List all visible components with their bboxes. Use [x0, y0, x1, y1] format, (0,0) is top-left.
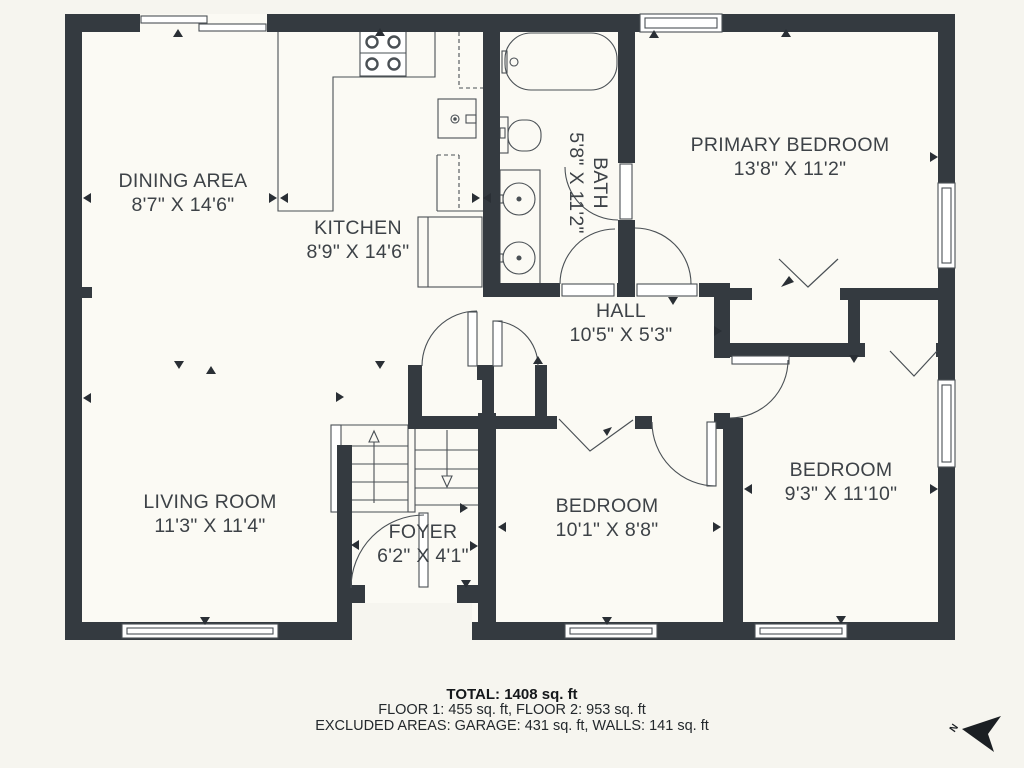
- room-name: BATH: [588, 132, 612, 234]
- sliding-door: [140, 14, 267, 32]
- wall-bath-left: [483, 32, 500, 293]
- wall-right: [938, 14, 955, 640]
- room-name: KITCHEN: [307, 216, 410, 240]
- room-dims: 5'8" X 11'2": [564, 132, 588, 234]
- window-bedroom1: [565, 624, 657, 638]
- room-dims: 9'3" X 11'10": [785, 482, 898, 506]
- room-name: BEDROOM: [785, 458, 898, 482]
- window-bedroom2-bottom: [755, 624, 847, 638]
- room-name: BEDROOM: [556, 494, 659, 518]
- wall-bottom-right: [472, 622, 955, 640]
- room-name: DINING AREA: [119, 169, 248, 193]
- room-label-bedroom-1: BEDROOM 10'1" X 8'8": [556, 494, 659, 542]
- room-label-dining-area: DINING AREA 8'7" X 14'6": [119, 169, 248, 217]
- room-name: PRIMARY BEDROOM: [691, 133, 890, 157]
- room-dims: 10'1" X 8'8": [556, 518, 659, 542]
- floor-plan-page: N DINING AREA 8'7" X 14'6" KITCHEN 8'9" …: [0, 0, 1024, 768]
- room-dims: 6'2" X 4'1": [377, 544, 469, 568]
- room-name: FOYER: [377, 520, 469, 544]
- entry-door-opening: [365, 585, 457, 603]
- room-label-hall: HALL 10'5" X 5'3": [570, 299, 673, 347]
- window-primary-top: [640, 14, 722, 32]
- floor-plan-drawing: N: [0, 0, 1024, 768]
- window-primary-right: [938, 183, 955, 268]
- room-dims: 11'3" X 11'4": [143, 514, 276, 538]
- room-dims: 13'8" X 11'2": [691, 157, 890, 181]
- area-summary: TOTAL: 1408 sq. ft FLOOR 1: 455 sq. ft, …: [0, 687, 1024, 734]
- window-bedroom2-right: [938, 380, 955, 467]
- room-name: HALL: [570, 299, 673, 323]
- room-label-foyer: FOYER 6'2" X 4'1": [377, 520, 469, 568]
- room-label-bedroom-2: BEDROOM 9'3" X 11'10": [785, 458, 898, 506]
- room-label-primary-bedroom: PRIMARY BEDROOM 13'8" X 11'2": [691, 133, 890, 181]
- room-label-bath: BATH 5'8" X 11'2": [564, 132, 612, 234]
- excluded-areas-text: EXCLUDED AREAS: GARAGE: 431 sq. ft, WALL…: [0, 719, 1024, 735]
- wall-left: [65, 14, 82, 640]
- total-area-text: TOTAL: 1408 sq. ft: [0, 687, 1024, 703]
- room-label-kitchen: KITCHEN 8'9" X 14'6": [307, 216, 410, 264]
- floor-areas-text: FLOOR 1: 455 sq. ft, FLOOR 2: 953 sq. ft: [0, 703, 1024, 719]
- room-label-living-room: LIVING ROOM 11'3" X 11'4": [143, 490, 276, 538]
- stove-icon: [360, 30, 406, 76]
- room-name: LIVING ROOM: [143, 490, 276, 514]
- room-dims: 8'7" X 14'6": [119, 193, 248, 217]
- window-living-room: [122, 624, 278, 638]
- room-dims: 8'9" X 14'6": [307, 240, 410, 264]
- room-dims: 10'5" X 5'3": [570, 323, 673, 347]
